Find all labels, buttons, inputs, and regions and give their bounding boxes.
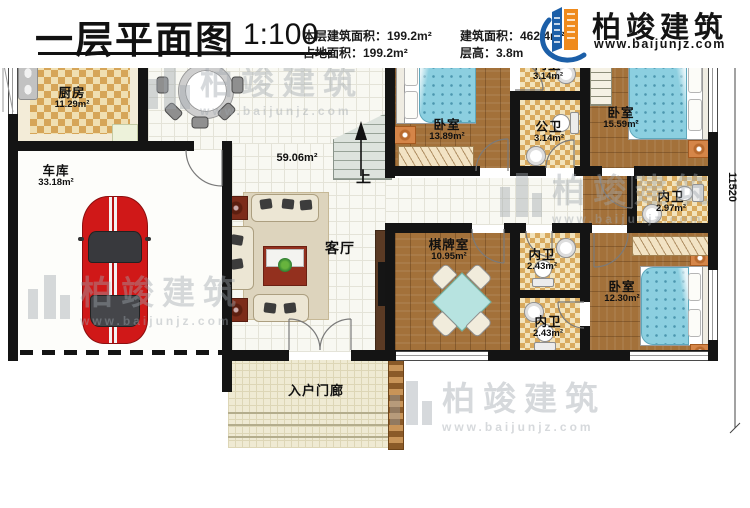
area-stats-col1: 本层建筑面积：199.2m² 占地面积：199.2m² (303, 28, 432, 62)
room-name: 内卫 (656, 190, 686, 204)
room-label-porch: 入户门廊 (288, 384, 344, 399)
room-area: 33.18m² (38, 178, 73, 189)
room-name: 卧室 (604, 280, 639, 294)
room-label-ensuite3: 内卫 2.43m² (527, 248, 557, 273)
room-name: 客厅 (325, 241, 355, 257)
dimension-right-label: 11520 (726, 172, 738, 202)
room-area: 2.97m² (656, 204, 686, 215)
title-underline (38, 52, 332, 55)
room-label-garage: 车库 33.18m² (38, 164, 73, 189)
room-name: 卧室 (429, 118, 464, 132)
room-label-public-bath: 公卫 3.14m² (534, 120, 564, 145)
floor-plan-page: 20000 11520 厨房 11.29m² 餐厅 车库 33.18m² 59.… (0, 0, 750, 508)
room-label-ensuite4: 内卫 2.43m² (533, 315, 563, 340)
room-area: 13.89m² (429, 132, 464, 143)
room-area: 12.30m² (604, 294, 639, 305)
door-arc (289, 319, 320, 350)
room-area: 2.43m² (533, 329, 563, 340)
room-name: 棋牌室 (429, 238, 470, 252)
door-arc (594, 233, 628, 267)
stat-footprint-area: 占地面积：199.2m² (303, 45, 432, 62)
room-area: 59.06m² (277, 152, 318, 164)
stat-floor-area: 本层建筑面积：199.2m² (303, 28, 432, 45)
door-arc (472, 229, 504, 263)
plan-title: 一层平面图 (35, 9, 235, 64)
title-block: 一层平面图 1:100 本层建筑面积：199.2m² 占地面积：199.2m² … (0, 0, 750, 68)
room-area: 10.95m² (429, 252, 470, 263)
room-name: 厨房 (55, 86, 90, 100)
stairs-up-label: 上 (356, 170, 372, 187)
room-label-ensuite2: 内卫 2.97m² (656, 190, 686, 215)
room-label-bedroom1: 卧室 13.89m² (429, 118, 464, 143)
room-name: 公卫 (534, 120, 564, 134)
room-name: 内卫 (533, 315, 563, 329)
room-label-bedroom2: 卧室 15.59m² (603, 106, 638, 131)
annotation-layer (0, 0, 750, 455)
room-name: 卧室 (603, 106, 638, 120)
room-name: 入户门廊 (288, 384, 344, 399)
stairs-up-text: 上 (356, 170, 372, 187)
living-area-label: 59.06m² (277, 152, 318, 164)
room-area: 3.14m² (533, 72, 563, 83)
door-arc (600, 176, 632, 208)
room-area: 2.43m² (527, 262, 557, 273)
room-name: 内卫 (527, 248, 557, 262)
room-area: 15.59m² (603, 120, 638, 131)
room-label-bedroom3: 卧室 12.30m² (604, 280, 639, 305)
door-arc (320, 319, 351, 350)
room-label-chess-room: 棋牌室 10.95m² (429, 238, 470, 263)
room-area: 11.29m² (55, 100, 90, 111)
room-label-living: 客厅 (325, 241, 355, 257)
room-label-kitchen: 厨房 11.29m² (55, 86, 90, 111)
brand-url: www.baijunjz.com (594, 37, 726, 51)
door-arcs (186, 62, 632, 350)
brand-logo-icon (538, 2, 590, 64)
stairs-up-arrow (355, 121, 367, 176)
door-arc (476, 139, 508, 171)
door-arc (186, 150, 222, 186)
room-area: 3.14m² (534, 134, 564, 145)
room-name: 车库 (38, 164, 73, 178)
dimension-lines (23, 6, 740, 433)
